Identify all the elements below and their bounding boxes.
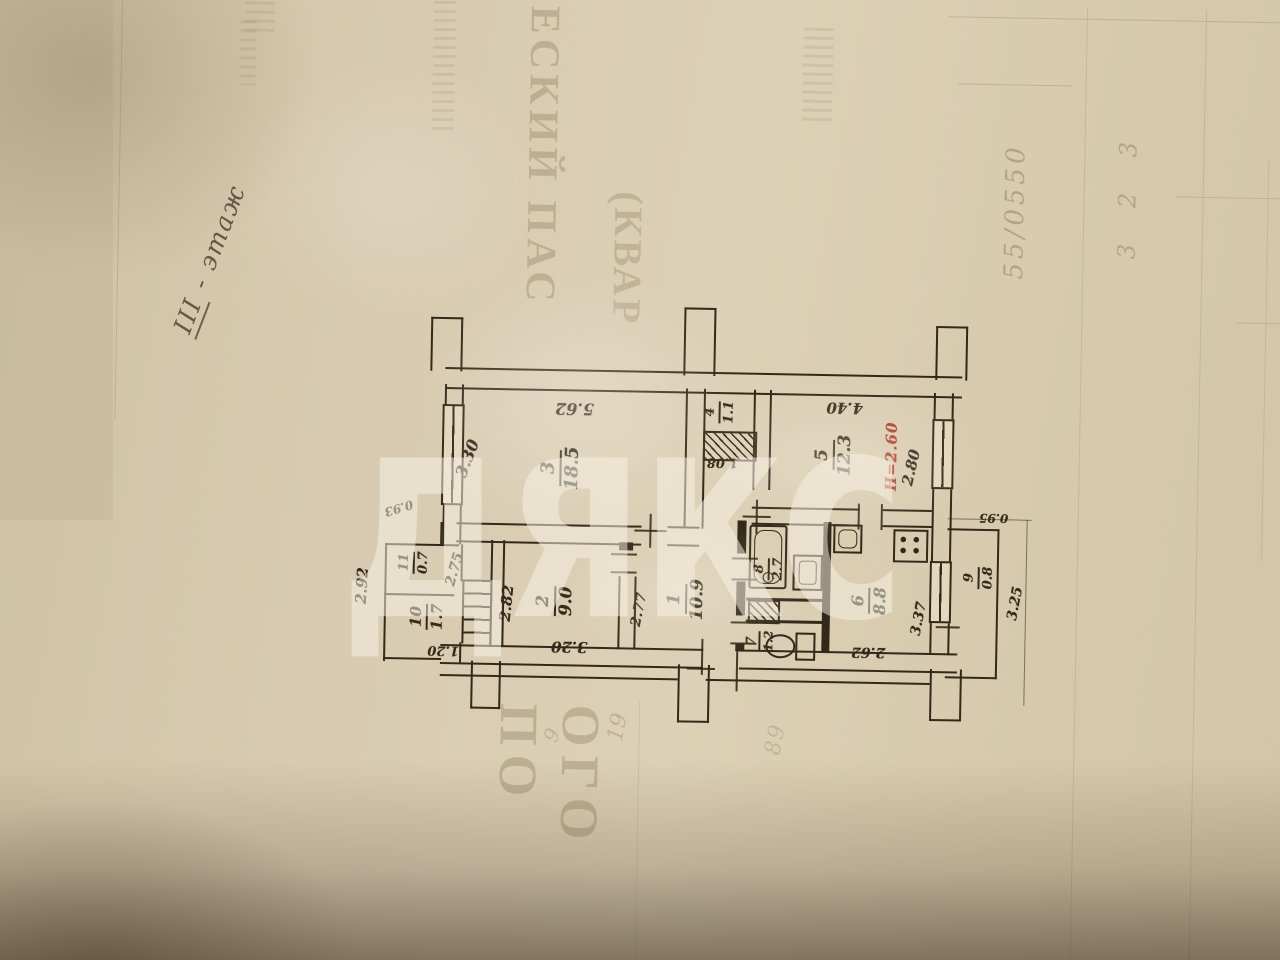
- dim-1-08: 1.08: [707, 455, 739, 469]
- window-symbol: [931, 419, 954, 489]
- faint-bleed-mark: [802, 28, 834, 124]
- wall-segment: [883, 509, 932, 528]
- door-tick: [743, 516, 771, 519]
- photo-shadow: [0, 0, 320, 280]
- dim-1-20: 1.20: [427, 643, 459, 657]
- wall-segment: [430, 317, 463, 372]
- pencil-note: 9: [538, 725, 565, 746]
- pencil-note: 55/0550: [999, 143, 1031, 280]
- room-area: 10.9: [689, 579, 707, 621]
- bleed-text-kvartiry: (КВАР: [603, 191, 652, 327]
- dimension-line: [1023, 520, 1027, 706]
- ceiling-height-note: Н=2.60: [884, 421, 900, 491]
- pencil-note: 19: [603, 711, 633, 743]
- room-label-8: 82.7: [753, 557, 785, 580]
- faint-bleed-mark: [802, 28, 834, 124]
- room-label-6: 68.8: [850, 587, 889, 616]
- photographed-floorplan-page: ЕСКИЙ ПАС (КВАР ОГО ПО III - этаж 55/055…: [0, 0, 1280, 960]
- dim-3-37: 3.37: [909, 601, 929, 637]
- wall-segment: [821, 522, 831, 653]
- room-label-2: 29.0: [535, 586, 576, 617]
- stove-icon: [893, 529, 929, 563]
- room-number: 4: [704, 407, 717, 416]
- fraction-bar: [413, 551, 415, 573]
- wall-segment: [385, 543, 459, 546]
- pencil-note: 89: [760, 721, 791, 757]
- table-grid-line: [958, 83, 1073, 86]
- table-grid-line: [1176, 196, 1280, 199]
- dim-3-25: 3.25: [1005, 585, 1025, 621]
- table-grid-line: [949, 16, 1280, 23]
- fraction-bar: [718, 401, 720, 423]
- dim-5-62: 5.62: [555, 400, 594, 417]
- room-label-7: 71.2: [744, 630, 774, 651]
- door-tick: [936, 626, 960, 628]
- room-area: 1.2: [762, 630, 774, 651]
- room-label-10: 101.7: [409, 603, 445, 630]
- wall-segment: [456, 522, 641, 545]
- wall-segment: [935, 326, 968, 381]
- wall-segment: [706, 679, 930, 685]
- room-label-4: 41.1: [703, 400, 735, 423]
- wall-segment: [383, 657, 441, 660]
- room-area: 1.7: [430, 604, 445, 630]
- wall-segment: [736, 581, 746, 615]
- room-label-9: 90.8: [962, 566, 994, 589]
- room-number: 8: [753, 564, 766, 573]
- room-label-5: 512.3: [813, 434, 854, 476]
- dim-4-40: 4.40: [826, 400, 863, 416]
- room-number: 10: [409, 606, 424, 627]
- door-tick: [611, 553, 637, 555]
- room-number: 7: [744, 636, 756, 645]
- room-label-1: 110.9: [666, 578, 707, 620]
- washbasin-icon: [792, 554, 823, 591]
- wall-segment: [667, 526, 699, 547]
- door-tick: [731, 621, 757, 623]
- kitchen-sink-icon: [833, 524, 863, 554]
- room-area: 9.0: [558, 586, 576, 616]
- room-number: 2: [535, 595, 552, 607]
- room-area: 1.1: [722, 401, 735, 424]
- wall-segment: [470, 661, 501, 710]
- room-label-11: 110.7: [398, 551, 430, 574]
- table-grid-line: [1261, 161, 1269, 561]
- fraction-bar: [768, 558, 770, 580]
- wall-segment: [737, 520, 747, 553]
- faint-bleed-mark: [432, 1, 456, 131]
- room-area: 8.8: [872, 587, 889, 615]
- faint-bleed-mark: [432, 1, 456, 131]
- table-grid-line: [1236, 323, 1280, 325]
- door-tick: [736, 651, 739, 691]
- bleed-text-passport: ЕСКИЙ ПАС: [516, 5, 570, 307]
- dim-2-80: 2.80: [900, 448, 923, 487]
- loggia-window-symbol: [461, 579, 492, 644]
- dim-0-93: 0.93: [383, 498, 414, 518]
- wall-segment: [995, 529, 1000, 679]
- wall-segment: [459, 642, 461, 662]
- room-number: 11: [398, 553, 411, 571]
- room-area: 0.8: [981, 567, 994, 590]
- balcony-window-symbol: [929, 561, 952, 623]
- wall-segment: [683, 307, 716, 376]
- room-number: 5: [814, 449, 831, 461]
- room-area: 0.7: [417, 551, 430, 574]
- room-area: 12.3: [836, 435, 854, 477]
- fraction-bar: [758, 631, 760, 651]
- wall-segment: [619, 542, 633, 550]
- room-number: 9: [963, 573, 976, 582]
- vent-shaft-hatch: [748, 600, 780, 625]
- room-area: 18.5: [563, 446, 582, 490]
- door-tick: [611, 571, 637, 573]
- room-number: 3: [539, 462, 557, 475]
- photo-shadow: [0, 760, 1280, 960]
- room-area: 2.7: [772, 558, 785, 581]
- wall-segment: [947, 528, 999, 531]
- floor-numeral: III: [167, 292, 210, 340]
- fraction-bar: [977, 567, 979, 589]
- dim-2-92: 2.92: [354, 567, 372, 605]
- pencil-note: 3 2 3: [1112, 128, 1142, 260]
- wall-segment: [677, 664, 710, 723]
- room-label-3: 318.5: [539, 446, 582, 491]
- dim-2-82: 2.82: [498, 584, 517, 622]
- wall-segment: [384, 593, 454, 596]
- dim-3-20: 3.20: [551, 639, 588, 655]
- dim-2-62: 2.62: [851, 645, 885, 660]
- wall-segment: [383, 543, 387, 661]
- room-number: 6: [850, 595, 866, 606]
- room-number: 1: [666, 593, 683, 605]
- dim-0-95: 0.95: [979, 512, 1008, 525]
